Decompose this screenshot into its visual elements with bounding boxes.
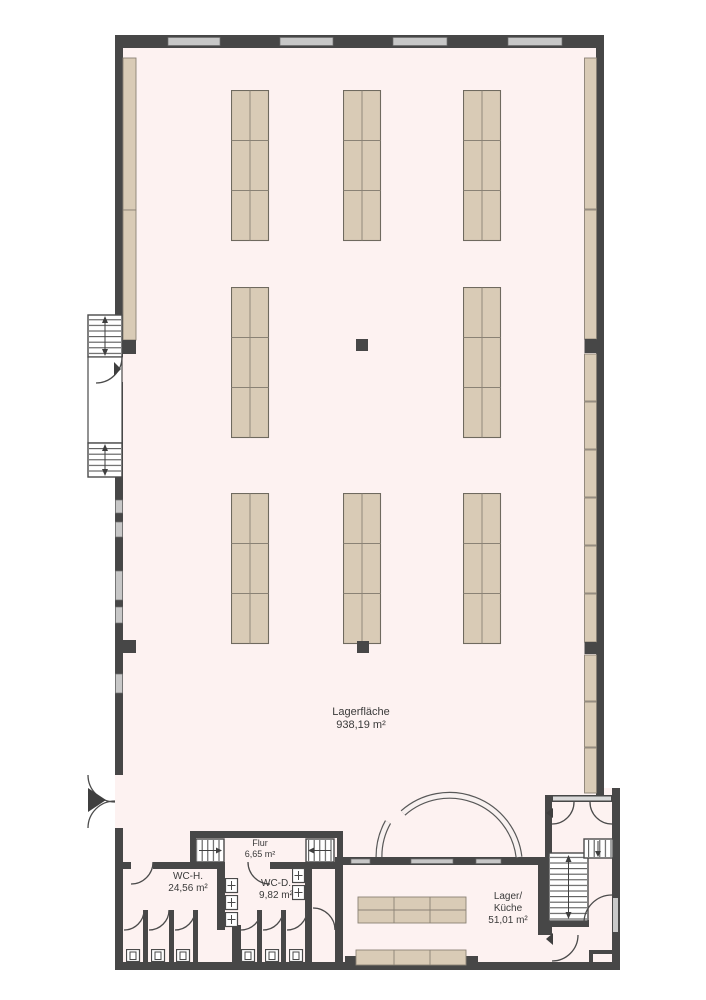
- window: [116, 522, 123, 537]
- toilet-icon: [152, 950, 165, 962]
- storage-rack: [344, 91, 381, 241]
- window: [393, 38, 447, 46]
- room-label-wc-d: WC-D. 9,82 m²: [236, 878, 316, 902]
- room-area: 938,19 m²: [336, 719, 386, 731]
- room-name: Flur: [252, 838, 268, 848]
- room-area: 9,82 m²: [259, 890, 293, 901]
- main-entrance: [88, 775, 115, 828]
- structural-column: [356, 339, 368, 351]
- toilet-icon: [290, 950, 303, 962]
- room-label-lager-kueche: Lager/ Küche 51,01 m²: [468, 891, 548, 928]
- toilet-icon: [266, 950, 279, 962]
- wall-opening: [411, 859, 453, 864]
- floor-plan-drawing: [0, 0, 706, 1000]
- exterior-stairs-upper: [88, 315, 122, 357]
- wall-opening: [351, 859, 370, 864]
- wall-annotation-illegible: [613, 898, 618, 932]
- room-name: WC-D.: [261, 878, 291, 889]
- room-label-wc-h: WC-H. 24,56 m²: [148, 871, 228, 895]
- room-name: Küche: [494, 903, 522, 914]
- room-area: 6,65 m²: [245, 849, 276, 859]
- storage-rack: [464, 288, 501, 438]
- toilet-icon: [177, 950, 190, 962]
- window: [508, 38, 562, 46]
- wall-pilaster: [123, 640, 136, 653]
- storage-rack: [464, 91, 501, 241]
- structural-column: [357, 641, 369, 653]
- storage-rack: [232, 91, 269, 241]
- storage-rack: [464, 494, 501, 644]
- toilet-icon: [127, 950, 140, 962]
- wall-opening: [476, 859, 501, 864]
- staircase-upper-flight: [584, 839, 613, 858]
- storage-rack: [232, 494, 269, 644]
- storage-rack: [344, 494, 381, 644]
- kitchen-table: [358, 897, 466, 923]
- room-label-flur: Flur 6,65 m²: [220, 838, 300, 860]
- window: [168, 38, 220, 46]
- window: [116, 500, 123, 513]
- room-name: Lagerfläche: [332, 706, 390, 718]
- window: [116, 607, 123, 623]
- floor-plan: Lagerfläche 938,19 m² Flur 6,65 m² WC-H.…: [0, 0, 706, 1000]
- wall-pilaster: [585, 642, 597, 654]
- wall-pilaster: [123, 340, 136, 354]
- flur-stairs-right: [306, 839, 334, 862]
- wall-pilaster: [585, 339, 597, 353]
- window: [116, 674, 123, 693]
- exterior-stairs-lower: [88, 443, 122, 477]
- room-label-lagerflaeche: Lagerfläche 938,19 m²: [301, 706, 421, 733]
- room-area: 51,01 m²: [488, 915, 527, 926]
- room-area: 24,56 m²: [168, 883, 207, 894]
- storage-rack: [232, 288, 269, 438]
- room-name: Lager/: [494, 891, 522, 902]
- toilet-icon: [242, 950, 255, 962]
- window: [116, 571, 123, 600]
- door-threshold: [553, 797, 611, 801]
- right-wall-shelving: [585, 58, 597, 793]
- window: [280, 38, 333, 46]
- staircase-main-flight: [549, 853, 588, 921]
- sink-icon: [226, 913, 238, 927]
- kitchen-bench: [345, 950, 478, 968]
- room-name: WC-H.: [173, 871, 203, 882]
